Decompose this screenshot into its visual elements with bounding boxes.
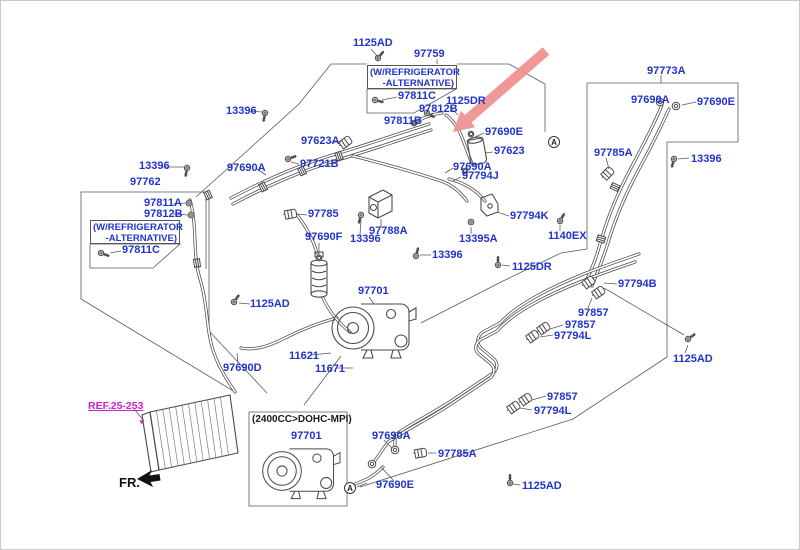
part-number-label[interactable]: 97794J — [462, 171, 499, 182]
clamp-icon — [590, 285, 605, 299]
clamp-icon — [505, 400, 520, 414]
part-number-label[interactable]: 97811C — [122, 245, 160, 256]
bolt-icon — [98, 250, 111, 259]
ref-25-253-link[interactable]: REF.25-253 — [88, 401, 143, 412]
part-number-label[interactable]: 97785A — [438, 449, 477, 460]
clamp-icon — [517, 392, 532, 406]
nut-icon — [468, 219, 474, 225]
part-number-label[interactable]: 97623 — [494, 146, 525, 157]
oring-icon — [316, 255, 322, 261]
coupling-icon — [204, 190, 213, 200]
bolt-icon — [495, 256, 500, 268]
bolt-icon — [556, 212, 566, 225]
bolt-icon — [507, 474, 512, 486]
part-number-label[interactable]: 97721B — [300, 159, 339, 170]
part-number-label[interactable]: 97690F — [305, 232, 342, 243]
part-number-label[interactable]: 97762 — [130, 177, 161, 188]
part-number-label[interactable]: 97701 — [291, 431, 322, 442]
diagram-line-art — [1, 1, 800, 550]
coupling-icon — [610, 183, 620, 192]
part-number-label[interactable]: 13396 — [691, 154, 722, 165]
fr-label: FR. — [119, 476, 140, 489]
part-number-label[interactable]: 97701 — [358, 286, 389, 297]
part-number-label[interactable]: 97690E — [697, 97, 735, 108]
part-number-label[interactable]: 1125AD — [250, 299, 290, 310]
part-number-label[interactable]: 97690A — [227, 163, 266, 174]
part-number-label[interactable]: 13395A — [459, 234, 498, 245]
part-number-label[interactable]: 1125AD — [353, 38, 393, 49]
part-number-label[interactable]: 1125AD — [673, 354, 713, 365]
oring-icon — [468, 131, 474, 137]
part-number-label[interactable]: 13396 — [432, 250, 463, 261]
part-number-label[interactable]: 97690E — [376, 480, 414, 491]
bolt-icon — [413, 247, 421, 260]
fr-direction-arrow-icon — [137, 470, 161, 487]
part-number-label[interactable]: 97794L — [554, 331, 591, 342]
part-number-label[interactable]: 13396 — [139, 161, 170, 172]
bolt-icon — [374, 50, 386, 62]
part-number-label[interactable]: 97690A — [372, 431, 411, 442]
part-number-label[interactable]: 1125DR — [512, 262, 552, 273]
part-number-label[interactable]: 1140EX — [548, 231, 587, 242]
part-number-label[interactable]: 11671 — [315, 364, 345, 375]
part-number-label[interactable]: 1125AD — [522, 481, 562, 492]
part-number-label[interactable]: 97690E — [485, 127, 523, 138]
part-number-label[interactable]: 97857 — [547, 392, 578, 403]
part-number-label[interactable]: 97812B — [144, 209, 183, 220]
part-number-label[interactable]: 97812B — [419, 104, 458, 115]
part-number-label[interactable]: 11621 — [289, 351, 319, 362]
part-number-label[interactable]: 97623A — [301, 136, 340, 147]
flange-icon — [391, 446, 399, 454]
part-number-label[interactable]: 97759 — [414, 49, 445, 60]
part-number-label[interactable]: 97811C — [398, 91, 436, 102]
part-number-label[interactable]: 13396 — [350, 234, 381, 245]
part-number-label[interactable]: 97773A — [647, 66, 686, 77]
part-number-label[interactable]: 13396 — [226, 106, 257, 117]
coupling-icon — [193, 259, 200, 268]
clamp-icon — [600, 166, 615, 181]
clamp-icon — [413, 448, 427, 459]
flange-icon — [368, 460, 376, 468]
nut-icon — [186, 200, 192, 206]
part-number-label[interactable]: 97785A — [594, 148, 633, 159]
part-number-label[interactable]: 97794B — [618, 279, 657, 290]
clamp-icon — [283, 209, 297, 220]
highlight-arrow — [453, 47, 549, 132]
part-number-label[interactable]: 97794L — [534, 406, 571, 417]
part-number-label[interactable]: 97690A — [631, 95, 670, 106]
diagram-caption: (2400CC>DOHC-MPI) — [252, 414, 352, 425]
bolt-icon — [356, 212, 364, 225]
part-number-label[interactable]: 97811B — [384, 116, 422, 127]
part-number-label[interactable]: 97857 — [578, 308, 609, 319]
part-number-label[interactable]: 97690D — [223, 363, 262, 374]
flange-icon — [672, 102, 680, 110]
ac-parts-diagram: 1125AD9775997811C1125DR97812B97811B13396… — [0, 0, 800, 550]
part-number-label[interactable]: 97785 — [308, 209, 339, 220]
bolt-icon — [669, 156, 677, 169]
bolt-icon — [285, 153, 298, 162]
bolt-icon — [230, 293, 241, 306]
part-number-label[interactable]: 97794K — [510, 211, 549, 222]
bolt-icon — [684, 332, 697, 343]
nut-icon — [188, 212, 194, 218]
coupling-icon — [596, 235, 605, 243]
bolt-icon — [372, 97, 385, 105]
